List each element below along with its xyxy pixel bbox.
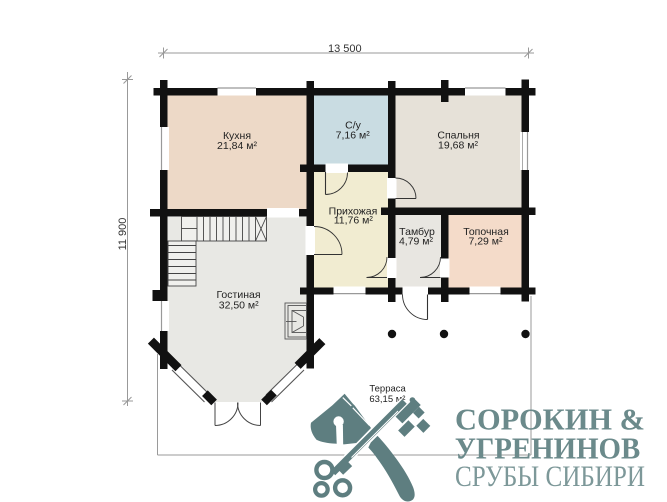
svg-text:11,76 м²: 11,76 м²	[334, 215, 374, 227]
svg-text:11 900: 11 900	[117, 218, 129, 251]
svg-text:21,84 м²: 21,84 м²	[217, 140, 257, 152]
svg-text:СРУБЫ СИБИРИ: СРУБЫ СИБИРИ	[455, 461, 645, 493]
svg-text:4,79 м²: 4,79 м²	[399, 235, 434, 247]
svg-text:13 500: 13 500	[328, 43, 362, 55]
svg-text:7,16 м²: 7,16 м²	[336, 130, 371, 142]
svg-text:32,50 м²: 32,50 м²	[219, 299, 259, 311]
svg-text:Терраса: Терраса	[369, 383, 406, 394]
svg-text:19,68 м²: 19,68 м²	[438, 139, 478, 151]
svg-text:7,29 м²: 7,29 м²	[468, 236, 503, 248]
